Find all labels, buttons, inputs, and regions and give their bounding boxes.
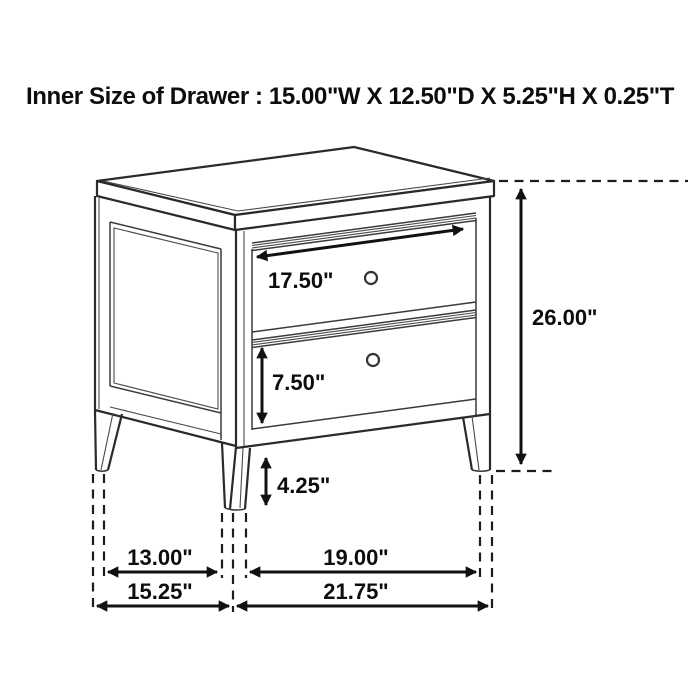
- side-panel: [95, 196, 236, 446]
- dim-label-overall-depth: 15.25": [127, 579, 192, 604]
- dimension-overall-height: 26.00": [521, 189, 597, 464]
- dim-label-side-leg-spacing: 13.00": [127, 545, 192, 570]
- diagram-page: Inner Size of Drawer : 15.00"W X 12.50"D…: [0, 0, 700, 700]
- back-left-leg: [95, 411, 122, 471]
- dimension-overall-depth: 15.25": [97, 579, 229, 606]
- dimension-bottom-drawer-height: 7.50": [262, 348, 325, 423]
- dim-label-overall-height: 26.00": [532, 305, 597, 330]
- nightstand-dimension-diagram: 17.50" 7.50" 4.25" 26.00" 13.00" 19.00" …: [0, 0, 700, 700]
- dimension-overall-width: 21.75": [237, 579, 488, 606]
- dimension-front-leg-spacing: 19.00": [250, 545, 476, 572]
- front-right-leg: [463, 416, 490, 471]
- dim-label-overall-width: 21.75": [323, 579, 388, 604]
- nightstand-drawing: [95, 147, 494, 510]
- bottom-drawer-knob: [367, 354, 379, 366]
- dimension-leg-clearance: 4.25": [266, 458, 330, 505]
- dim-label-front-leg-spacing: 19.00": [323, 545, 388, 570]
- top-drawer-knob: [365, 272, 377, 284]
- dim-label-top-drawer-width: 17.50": [268, 268, 333, 293]
- front-left-leg: [222, 443, 250, 510]
- tabletop: [97, 147, 494, 230]
- dim-label-bottom-drawer-height: 7.50": [272, 370, 325, 395]
- dim-label-leg-clearance: 4.25": [277, 473, 330, 498]
- dimension-side-leg-spacing: 13.00": [108, 545, 217, 572]
